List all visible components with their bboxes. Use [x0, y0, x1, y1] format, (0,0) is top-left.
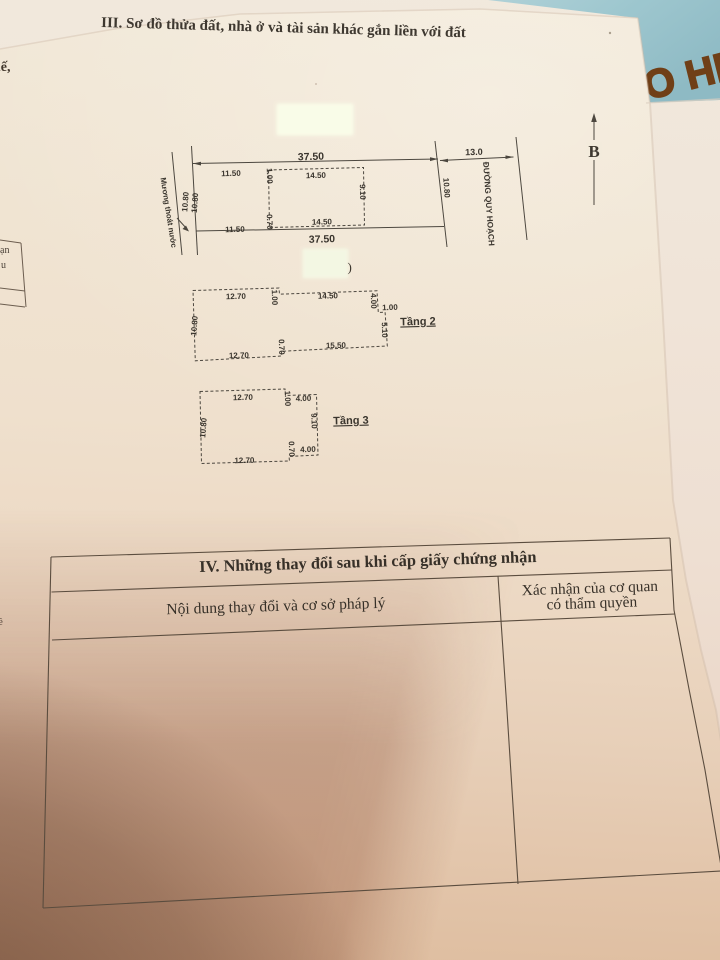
- svg-text:Nội dung thay đổi và cơ sở phá: Nội dung thay đổi và cơ sở pháp lý: [166, 595, 386, 619]
- svg-text:có thẩm quyền: có thẩm quyền: [546, 593, 637, 613]
